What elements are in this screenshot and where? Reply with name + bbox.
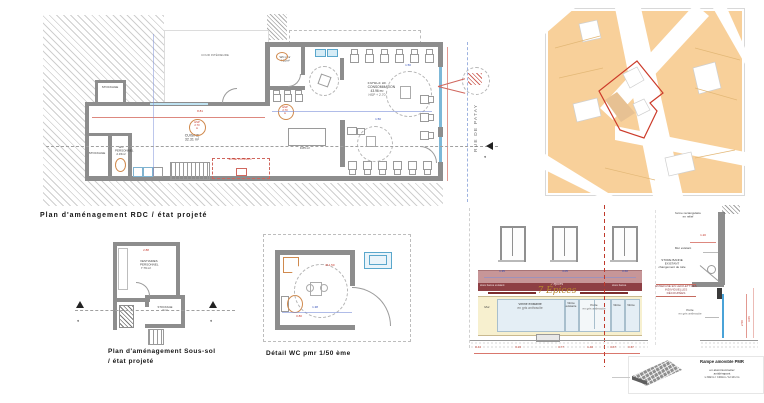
dim-line xyxy=(753,288,754,338)
wall xyxy=(176,242,180,298)
leader-line xyxy=(703,252,718,253)
ground-line xyxy=(700,340,758,350)
section-wall xyxy=(718,212,725,285)
leader-line xyxy=(705,317,719,318)
room-label-vestiaires: VESTIAIRES PERSONNEL7.79 m² xyxy=(131,260,161,271)
section-marker-arrow xyxy=(486,142,493,150)
dim-label: 3.05 xyxy=(558,270,573,274)
architectural-sheet: COUR INTÉRIEURE STOCKAGE STOCKAGE WC PER… xyxy=(0,0,764,403)
section-marker-letter: A xyxy=(484,156,487,158)
upper-window xyxy=(612,226,638,262)
storefront-glass xyxy=(439,67,442,127)
section-door-glass xyxy=(722,294,724,338)
section-cut-hatch xyxy=(722,205,740,214)
annotation: ENSEIGNE EN LED/LETTRESINDIVIDUELLES DÉC… xyxy=(655,285,697,296)
table-icon xyxy=(273,94,281,102)
street-label: RUE DE PATAY xyxy=(474,104,479,152)
sink-icon xyxy=(327,49,338,57)
dim-line xyxy=(447,47,448,181)
annotation: Porteen gris anthracite xyxy=(675,309,705,316)
mur-label: Mur xyxy=(472,306,502,310)
soussol-title-line2: / état projeté xyxy=(108,358,154,365)
store-detail-circle xyxy=(707,265,716,274)
upper-window xyxy=(552,226,578,262)
wall xyxy=(145,295,185,299)
wall xyxy=(340,58,344,80)
room-label-stockage-top: STOCKAGE xyxy=(95,86,125,90)
dim-label: 1.50 xyxy=(371,118,386,122)
dim-label: 0.44 xyxy=(473,346,483,350)
ramp-icon xyxy=(632,360,682,388)
table-icon xyxy=(365,54,374,63)
chair-icon xyxy=(349,169,356,175)
chair-icon xyxy=(428,114,434,121)
table-icon xyxy=(350,54,359,63)
sink-icon xyxy=(143,167,153,177)
room-label-wc-personnel: WC PERSONNEL2.15m² xyxy=(106,146,136,157)
stairs-icon xyxy=(148,329,164,345)
wheelchair-icon xyxy=(400,86,411,99)
boundary-line xyxy=(655,210,657,345)
duct-hatch xyxy=(119,305,134,328)
storefront-glass xyxy=(439,137,442,162)
window-glass xyxy=(150,103,208,105)
boundary-line xyxy=(469,208,471,348)
section-marker-arrow xyxy=(209,301,217,308)
courtyard xyxy=(164,30,269,104)
vitrine-2-label: Vitrine existante xyxy=(564,302,578,308)
window-mullion xyxy=(564,228,565,256)
chair-icon xyxy=(379,169,386,175)
toilet-icon xyxy=(276,52,288,61)
hsp-label: HSP 2.70 m xyxy=(190,121,204,131)
counter-icon xyxy=(153,167,163,177)
wall xyxy=(267,42,443,47)
coffee-machine-icon xyxy=(347,127,357,135)
wall xyxy=(145,295,149,307)
wall xyxy=(275,250,355,255)
chair-icon xyxy=(428,96,434,103)
zone-cuisson-label: ZONE CUISSON xyxy=(225,158,255,162)
section-axis xyxy=(75,310,235,311)
locker-icon xyxy=(118,248,128,290)
room-label-cuisine: CUISINE32.31 m² xyxy=(174,134,210,142)
wc-detail-title: Détail WC pmr 1/50 ème xyxy=(266,350,351,357)
counter-icon xyxy=(288,128,326,146)
annotation: Mur existant xyxy=(666,247,701,251)
wall xyxy=(145,324,185,328)
boundary-line xyxy=(467,42,469,202)
dim-label: 0.80 xyxy=(292,315,307,319)
dim-line xyxy=(272,111,432,112)
site-map xyxy=(545,8,745,196)
sink-icon xyxy=(133,167,143,177)
dim-label: 2.50 xyxy=(741,320,744,326)
window-mullion xyxy=(512,228,513,256)
dim-label: 1.50 xyxy=(401,64,416,68)
ramp-label-dims: L:90cm / l:40cm / H:10 cm xyxy=(703,376,741,380)
table-icon xyxy=(284,94,292,102)
stockage-annex-floor xyxy=(95,80,126,102)
chair-icon xyxy=(409,169,416,175)
wall xyxy=(301,47,305,75)
wall xyxy=(350,250,355,286)
hatch-area xyxy=(43,183,443,206)
dim-line xyxy=(92,117,265,118)
soussol-title-line1: Plan d'aménagement Sous-sol xyxy=(108,348,216,355)
window-mullion xyxy=(624,228,625,256)
wall xyxy=(265,42,270,106)
band-right-label: store banne xyxy=(612,284,626,287)
dim-label: 0.67 xyxy=(608,346,618,350)
wall xyxy=(113,242,117,330)
wall xyxy=(438,162,443,181)
annotation-rule xyxy=(656,296,696,297)
dim-label: 0.67 xyxy=(626,346,636,350)
dim-label: 3.06 xyxy=(748,316,751,322)
courtyard-label: COUR INTÉRIEURE xyxy=(195,54,235,58)
window-sill xyxy=(498,260,524,262)
dim-label: 1.35 xyxy=(495,270,510,274)
door-swing xyxy=(136,282,150,296)
table-icon xyxy=(380,54,389,63)
ramp-label-title: Rampe amovible PMR xyxy=(695,360,748,365)
dim-label: 1.20 xyxy=(696,234,711,238)
leader-line xyxy=(612,377,630,378)
toilet-icon xyxy=(115,158,126,172)
annotation: forme rectangulaireen relief xyxy=(666,212,711,219)
sink-icon xyxy=(315,49,326,57)
rdc-title: Plan d'aménagement RDC / état projeté xyxy=(40,212,207,219)
wheel-icon xyxy=(306,284,314,292)
wheel-icon xyxy=(320,284,328,292)
sink-basin xyxy=(369,255,387,265)
dim-line xyxy=(690,242,716,243)
wall xyxy=(438,42,443,67)
section-axis xyxy=(46,146,498,147)
band-left-label: store banne existant xyxy=(480,284,504,287)
dim-label: 0.60 xyxy=(618,270,633,274)
wall xyxy=(438,127,443,137)
wall xyxy=(95,80,98,102)
dim-line xyxy=(746,294,747,338)
wall xyxy=(123,80,126,102)
annotation: STORE BANNEEXISTANTchangement de toile xyxy=(656,259,688,270)
wall xyxy=(85,102,89,181)
dim-label: 8.81 xyxy=(193,110,208,114)
wall xyxy=(340,120,345,167)
section-marker-arrow xyxy=(76,301,84,308)
dim-label: 1.38 xyxy=(308,306,323,310)
dim-line xyxy=(484,277,636,278)
chair-icon xyxy=(428,132,434,139)
dim-label: 3.23 xyxy=(513,346,523,350)
window-sill xyxy=(610,260,636,262)
window-sill xyxy=(550,260,576,262)
table-icon xyxy=(425,54,434,63)
dim-label: 2.88 xyxy=(139,249,154,253)
chair-icon xyxy=(394,169,401,175)
section-marker-letter: A xyxy=(210,320,213,322)
dim-line xyxy=(474,353,640,354)
dim-line xyxy=(282,312,352,313)
upper-window xyxy=(500,226,526,262)
hatch-area xyxy=(267,14,287,40)
detail-balloon-hatch xyxy=(468,73,482,85)
vitrine-1-label: Vitrine existanteen gris anthracite xyxy=(514,303,547,311)
stairs-icon xyxy=(170,162,210,180)
section-marker-letter: A xyxy=(77,320,80,322)
wall xyxy=(95,80,126,83)
dim-label: 0.77 xyxy=(556,346,566,350)
vitrine-4-label: Vitrine xyxy=(624,304,638,307)
table-icon xyxy=(295,94,303,102)
dim-label: 1.40 xyxy=(585,346,595,350)
wall xyxy=(275,250,280,330)
table-icon xyxy=(410,54,419,63)
shop-sign-script: 7 Épices xyxy=(507,286,607,296)
site-map-svg xyxy=(545,8,745,196)
equipment-icon xyxy=(236,168,247,176)
dim-label: Ø 1.50 xyxy=(323,264,338,268)
chair-icon xyxy=(424,169,431,175)
dim-line xyxy=(153,34,154,176)
vitrine-3-label: Vitrine xyxy=(610,304,624,307)
wall xyxy=(113,242,180,246)
wall xyxy=(88,133,132,136)
table-icon xyxy=(395,54,404,63)
wall xyxy=(275,325,355,330)
chair-icon xyxy=(364,169,371,175)
